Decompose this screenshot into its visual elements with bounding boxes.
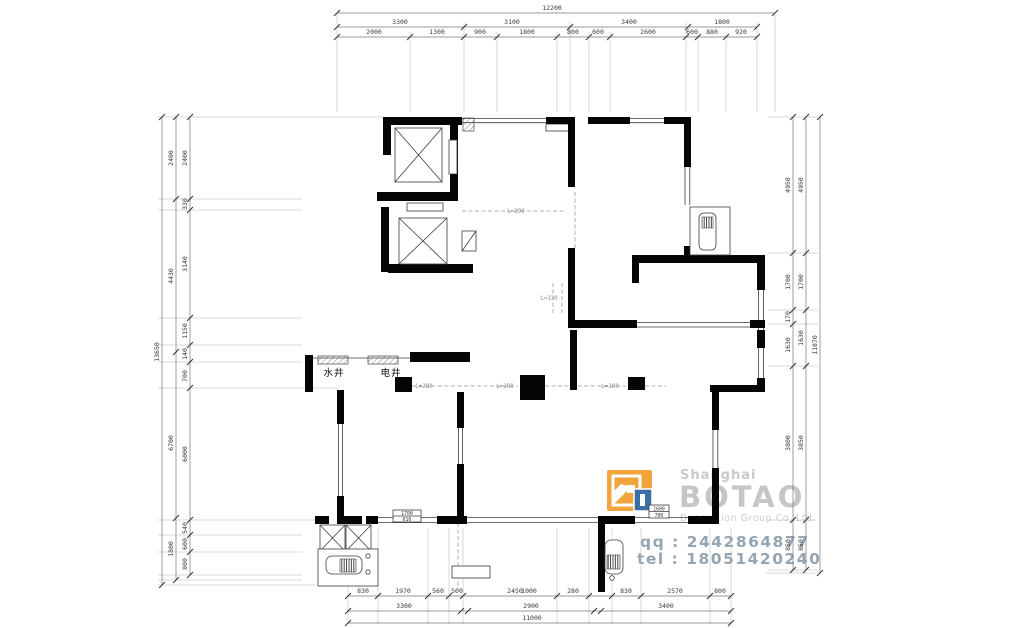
dim-label: 1970 (395, 587, 411, 595)
botao-logo (607, 470, 652, 511)
tag-text: 1600 (653, 507, 665, 513)
dim-bottom-total: 11000 (522, 614, 542, 622)
water-heater-fixture (690, 207, 730, 255)
dim-label: 830 (620, 587, 632, 595)
column-hatch (463, 118, 474, 131)
dim-left-total: 13650 (153, 342, 161, 362)
tag-text: 1700 (401, 511, 413, 517)
dim-label: 1700 (797, 274, 805, 290)
floor-plan-drawing: Shanghai BOTAO Decoration Group Co.,Ltd.… (0, 0, 1011, 628)
beam-label: L=280 (415, 384, 433, 390)
dim-label: 920 (735, 28, 747, 36)
dim-label: 560 (432, 587, 444, 595)
dim-label: 2400 (167, 150, 175, 166)
tag-text: 610 (403, 517, 412, 523)
watermark-brand: BOTAO (679, 480, 805, 514)
dim-label: 1630 (784, 337, 792, 353)
dim-label: 2600 (640, 28, 656, 36)
dim-label: 3850 (797, 435, 805, 451)
dim-label: 880 (706, 28, 718, 36)
witness-lines-left (158, 117, 383, 585)
floor-plan-canvas: Shanghai BOTAO Decoration Group Co.,Ltd.… (0, 0, 1011, 628)
dim-label: 6000 (181, 446, 189, 462)
porch-bracing (320, 525, 371, 551)
water-shaft-label: 水井 (323, 367, 344, 379)
dim-label: 3400 (658, 602, 674, 610)
dim-label: 900 (474, 28, 486, 36)
dim-label: 2400 (181, 150, 189, 166)
dim-label: 800 (567, 28, 579, 36)
step-outline (452, 566, 490, 578)
radiator-fixture (605, 540, 623, 580)
dim-label: 600 (686, 28, 698, 36)
dim-label: 1150 (181, 323, 189, 339)
dim-label: 600 (592, 28, 604, 36)
beam-label: L=280 (496, 384, 514, 390)
dim-label: 4950 (784, 177, 792, 193)
beam-label: L=280 (601, 384, 619, 390)
dim-label: 3140 (181, 256, 189, 272)
tag-box-right: 1600 700 (649, 505, 669, 519)
window-lines (313, 119, 764, 523)
dim-label: 170 (784, 311, 792, 323)
dim-label: 3300 (396, 602, 412, 610)
dim-label: 830 (357, 587, 369, 595)
tag-text: 700 (655, 513, 664, 519)
dim-label: 3100 (504, 18, 520, 26)
dim-label: 330 (181, 198, 189, 210)
dim-label: 800 (714, 587, 726, 595)
dim-label: 1800 (167, 541, 175, 557)
elevator-shaft-upper (395, 128, 457, 182)
dim-label: 1800 (519, 28, 535, 36)
dim-label: 2570 (667, 587, 683, 595)
dim-label: 6700 (167, 435, 175, 451)
dim-label: 2000 (366, 28, 382, 36)
elevator-shaft-lower (399, 203, 447, 264)
dim-label: 500 (451, 587, 463, 595)
dim-label: 850 (797, 539, 805, 551)
dim-label: 4950 (797, 177, 805, 193)
dim-label: 700 (181, 370, 189, 382)
dim-label: 1800 (714, 18, 730, 26)
dim-label: 600 (181, 538, 189, 550)
dim-label: 1630 (797, 330, 805, 346)
dim-label: 4430 (167, 268, 175, 284)
dim-label: 3400 (621, 18, 637, 26)
dim-label: 2900 (523, 602, 539, 610)
walls (305, 117, 765, 592)
dim-label: 1000 (521, 587, 537, 595)
dim-label: 1700 (784, 274, 792, 290)
dim-label: 850 (784, 539, 792, 551)
electric-shaft-label: 电井 (380, 367, 401, 379)
tag-box-left: 1700 610 (393, 510, 421, 523)
dim-label: 280 (567, 587, 579, 595)
dim-label: 3300 (392, 18, 408, 26)
dim-label: 540 (181, 522, 189, 534)
dim-label: 3800 (784, 435, 792, 451)
shaft-hatch-electric (368, 356, 398, 364)
watermark-tel: tel : 18051420240 (637, 550, 821, 568)
dim-label: 800 (181, 558, 189, 570)
dim-top-total: 12200 (542, 4, 562, 12)
beam-label: L=290 (507, 209, 525, 215)
plan: 水井 电井 L=290 L=330 L=280 L=280 L=280 (305, 117, 765, 592)
dim-right-total: 11870 (811, 335, 819, 355)
dim-label: 140 (181, 348, 189, 360)
door-leaf (462, 231, 476, 251)
beam-label: L=330 (540, 296, 558, 302)
dim-label: 1300 (429, 28, 445, 36)
shaft-hatch-water (318, 356, 348, 364)
control-panel-fixture (318, 549, 378, 586)
